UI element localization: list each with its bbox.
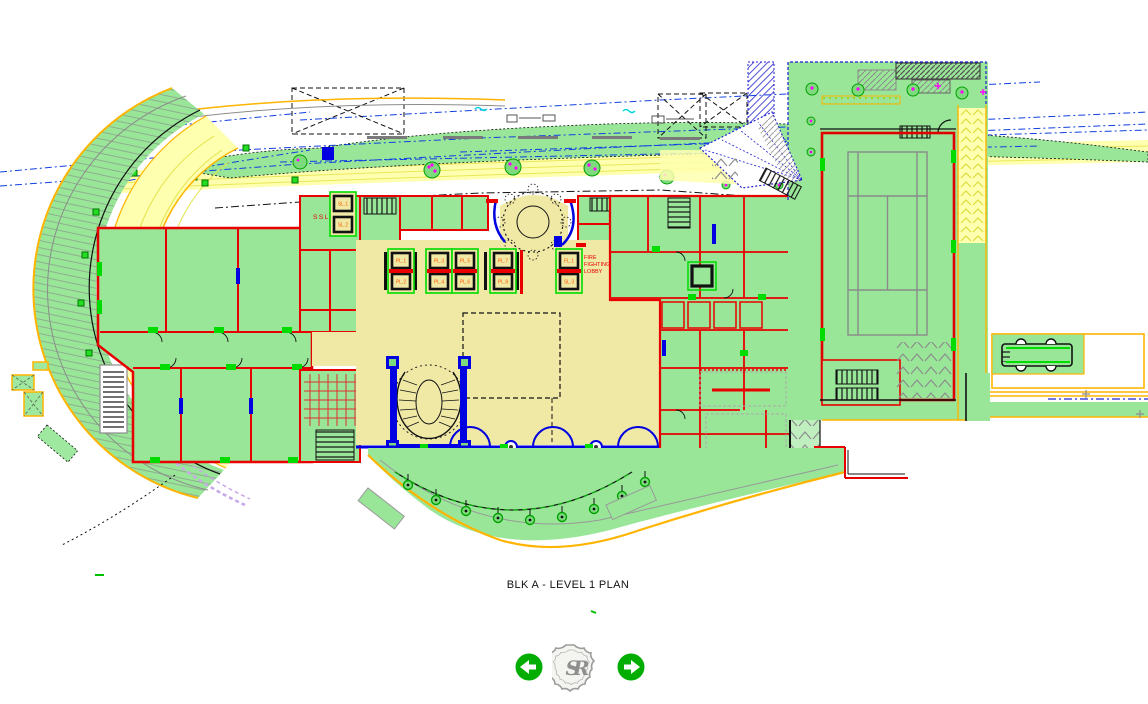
arrow-right-icon [617,653,645,681]
arrow-left-icon [515,653,543,681]
shaft [692,266,712,286]
lift-label: PL.5 [460,259,471,265]
planter [896,63,980,79]
lift-label: PL.8 [498,280,509,286]
fire-lobby-label: FIGHTING [584,262,610,268]
lift-label: SL.3 [564,280,575,286]
floor-plan-image: PL.1 PL.2 PL.3 PL.4 PL.5 PL.6 [0,0,1148,704]
lift-label: FL.1 [564,259,574,265]
porte-cochere [966,334,1148,421]
prev-button[interactable] [515,653,543,681]
lift-label: SL.1 [338,202,349,208]
verge-band [988,402,1148,417]
hatch-zone [896,342,952,398]
blue-marker-box [322,147,334,160]
stray-mark [591,611,596,613]
lift-label: SL.2 [338,223,349,229]
lift-label: PL.7 [498,259,509,265]
plan-navigation: SR [505,640,655,696]
ramp-planter [37,425,77,462]
section-marker [507,115,694,123]
passenger-lifts: PL.1 PL.2 PL.3 PL.4 PL.5 PL.6 [384,249,523,294]
lift-label: PL.6 [460,280,471,286]
lift-label: PL.4 [434,280,445,286]
lift-label: PL.2 [396,280,407,286]
plan-viewer-page: PL.1 PL.2 PL.3 PL.4 PL.5 PL.6 [0,0,1148,704]
plan-caption: BLK A - LEVEL 1 PLAN [428,579,708,591]
lift-label: PL.3 [434,259,445,265]
ssl-label: SSL [313,214,330,221]
fire-lobby-label: FIRE [584,255,597,261]
fire-lobby-label: LOBBY [584,269,603,275]
lift-label: PL.1 [396,259,407,265]
next-button[interactable] [617,653,645,681]
brand-crest-logo: SR [552,643,596,693]
